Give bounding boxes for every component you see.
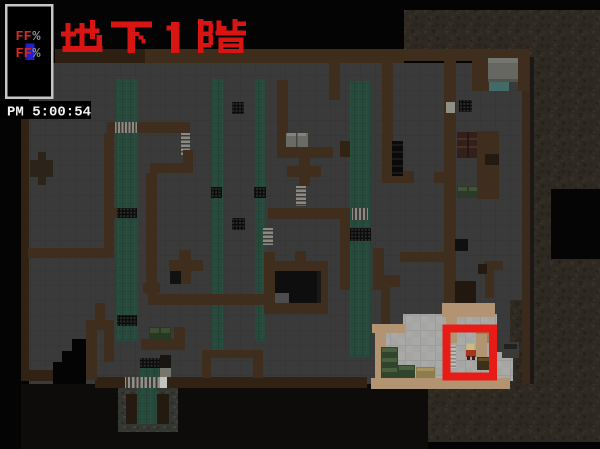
svg-text:PM 5:00:54: PM 5:00:54 [7, 105, 91, 121]
svg-text:%: % [32, 47, 41, 62]
svg-text:FF: FF [16, 30, 32, 45]
svg-text:FF: FF [16, 47, 32, 62]
svg-text:%: % [32, 30, 41, 45]
